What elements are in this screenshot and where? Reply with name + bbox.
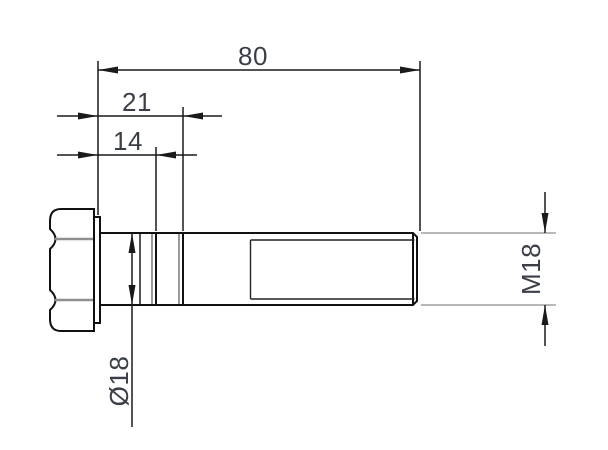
dimension-value-14: 14 [113, 126, 143, 156]
dimension-overall-length: 80 [98, 41, 420, 231]
dimension-value-80: 80 [238, 41, 268, 71]
arrowhead-down [542, 213, 549, 233]
bolt-shank-outline [100, 233, 417, 305]
hex-head [50, 209, 94, 331]
dimension-thread-callout: M18 [421, 192, 556, 346]
arrowhead-right [183, 113, 203, 120]
bolt-technical-drawing: 80 21 14 Ø18 [0, 0, 608, 450]
bolt-body [50, 209, 417, 331]
dimension-value-m18: M18 [516, 243, 546, 295]
arrowhead-left [78, 113, 98, 120]
arrowhead-left [98, 67, 118, 74]
dimension-value-diameter18: Ø18 [104, 356, 134, 407]
arrowhead-right [156, 152, 176, 159]
arrowhead-right [400, 67, 420, 74]
arrowhead-left [78, 152, 98, 159]
drawing-canvas: 80 21 14 Ø18 [0, 0, 608, 450]
arrowhead-up [542, 305, 549, 325]
dimension-value-21: 21 [122, 87, 152, 117]
